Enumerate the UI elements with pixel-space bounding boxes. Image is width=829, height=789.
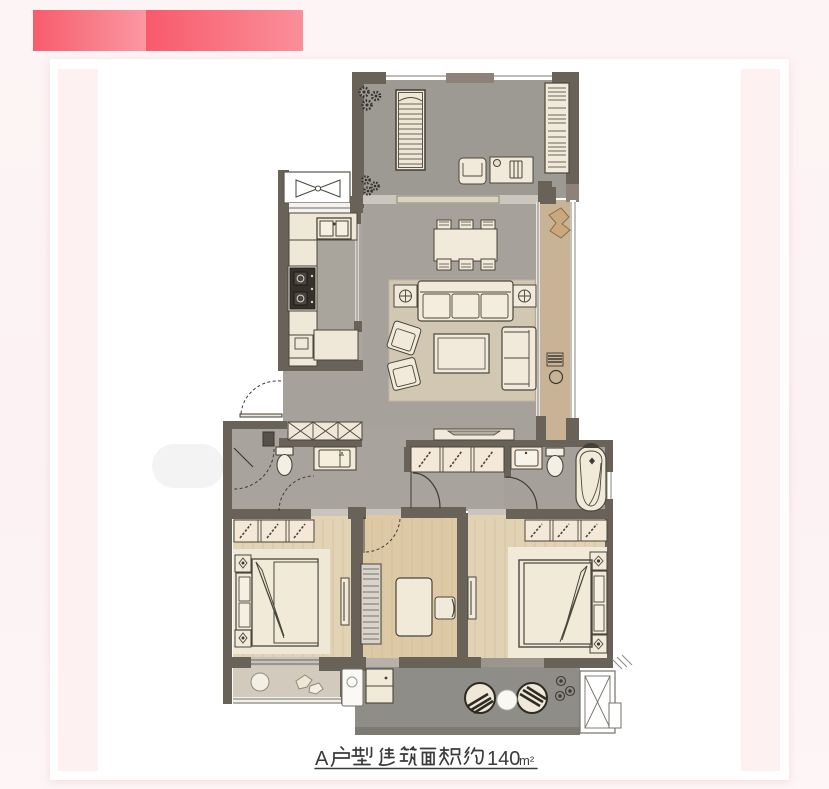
svg-text:A: A <box>315 748 329 770</box>
svg-text:140: 140 <box>487 748 520 770</box>
svg-text:m²: m² <box>519 753 535 768</box>
